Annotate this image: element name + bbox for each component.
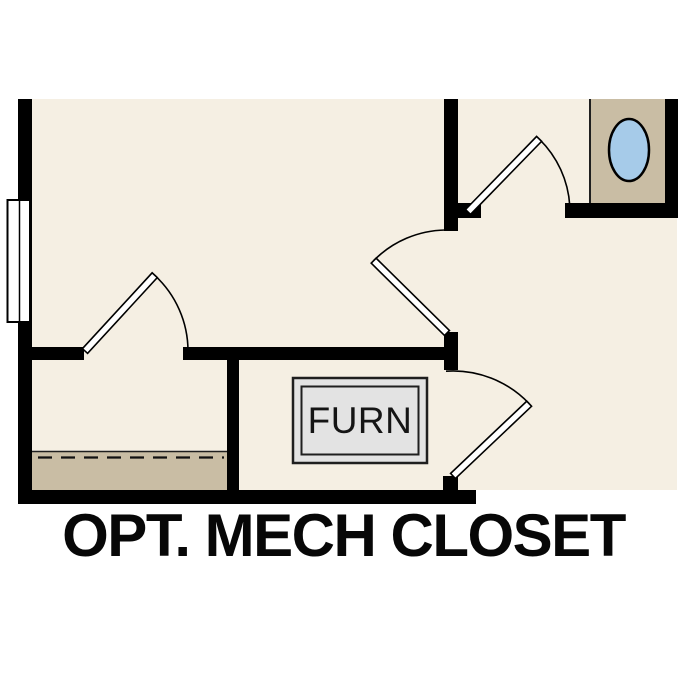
- furnace-label: FURN: [293, 378, 427, 463]
- wall-vertical-top: [444, 99, 458, 231]
- window-symbol: [8, 200, 31, 322]
- wall-interior-left: [30, 347, 84, 360]
- floor-plan-page: FURN OPT. MECH CLOSET: [0, 0, 687, 687]
- floor-plan: [0, 0, 687, 687]
- wall-closet-divider: [227, 347, 239, 490]
- wall-interior-mid: [183, 347, 445, 360]
- wall-mid-stub: [444, 332, 458, 370]
- utility-alcove: [589, 99, 665, 203]
- wall-right: [665, 99, 678, 218]
- plan-caption: OPT. MECH CLOSET: [0, 506, 687, 566]
- wall-upper-right: [565, 203, 678, 218]
- sink-fixture: [609, 119, 649, 181]
- crawlspace-strip: [32, 451, 227, 490]
